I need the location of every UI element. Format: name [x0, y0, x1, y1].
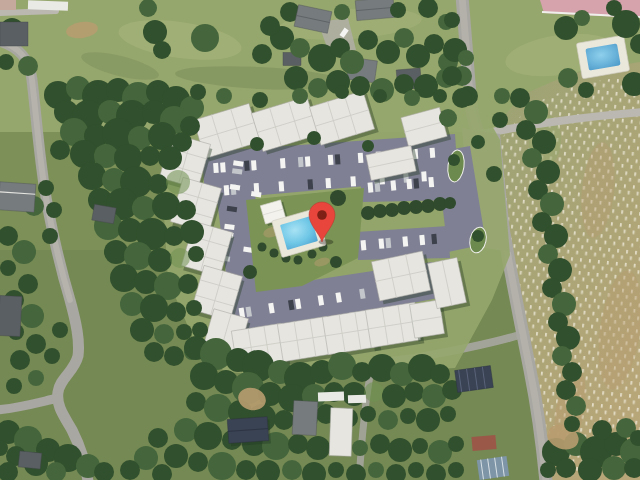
map-viewport[interactable] — [0, 0, 640, 480]
marker-shadow — [319, 239, 334, 245]
house-roof — [477, 456, 509, 480]
house-roof — [455, 366, 494, 393]
marker-dot — [317, 210, 327, 220]
satellite-map[interactable] — [0, 0, 640, 480]
house-roof — [329, 408, 353, 457]
house-roof — [18, 451, 42, 469]
house-roof — [0, 22, 28, 46]
house-roof — [0, 0, 16, 10]
house-roof — [355, 0, 395, 21]
house-roof — [28, 0, 68, 10]
house-roof — [0, 295, 22, 336]
apartment-complex — [158, 86, 510, 376]
top-left-driveway — [0, 11, 56, 13]
house-roof — [471, 435, 496, 451]
house-roof — [0, 182, 36, 212]
house-roof — [292, 400, 318, 435]
house-roof — [227, 416, 271, 446]
